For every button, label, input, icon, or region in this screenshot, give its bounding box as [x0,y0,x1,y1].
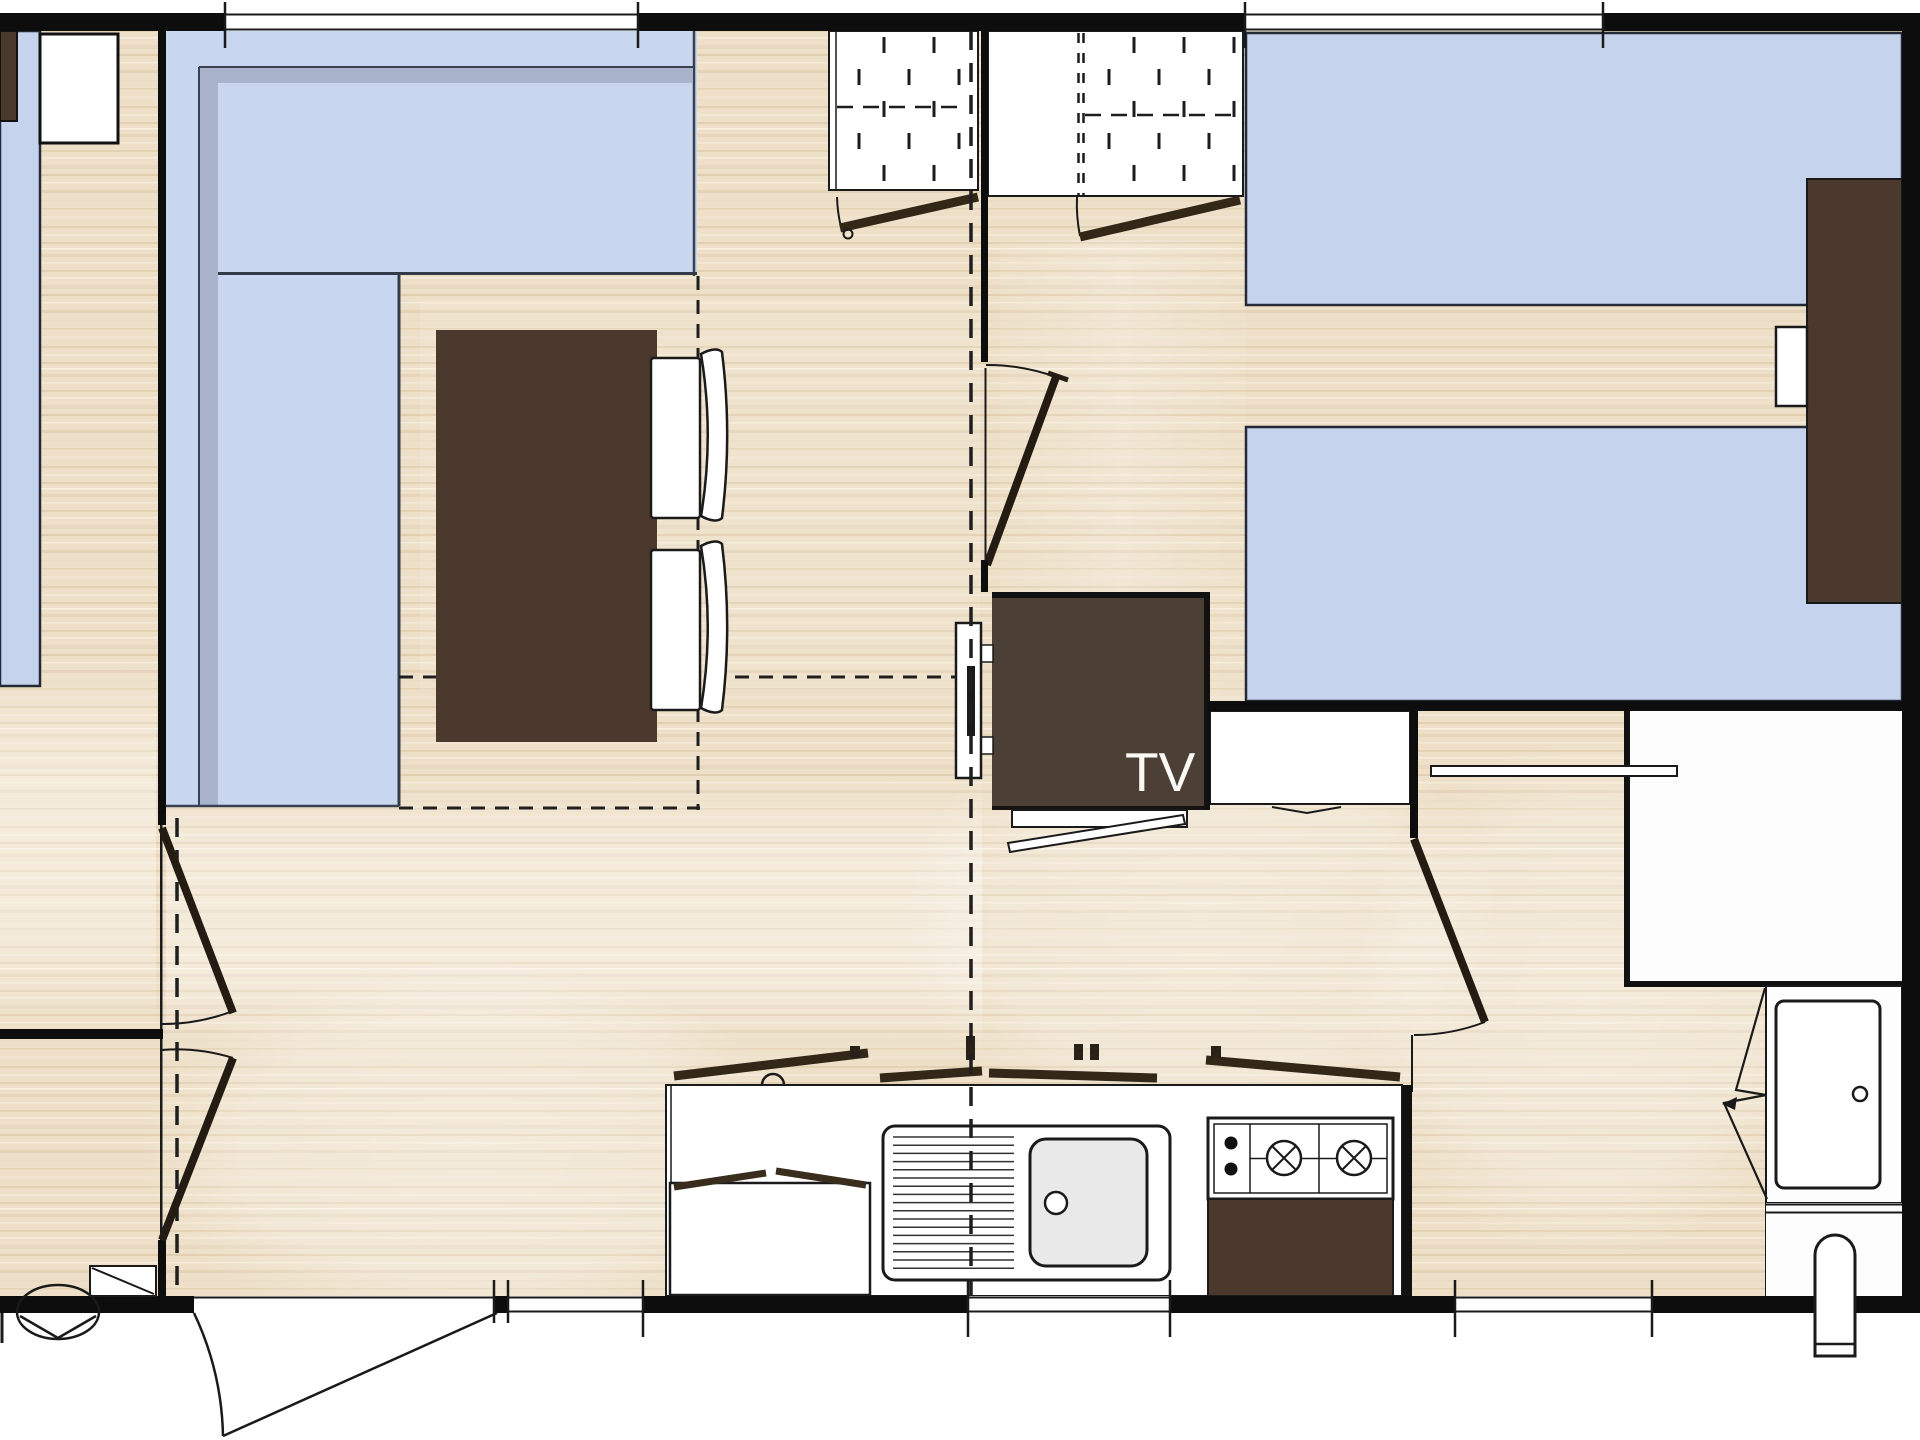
svg-text:TV: TV [1125,741,1196,803]
